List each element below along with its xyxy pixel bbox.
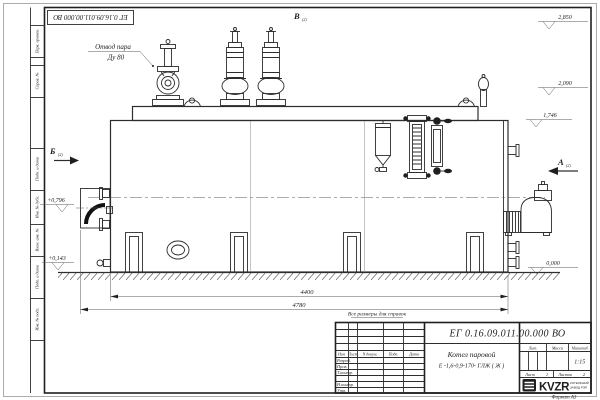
side-label: Подп. и дата xyxy=(35,157,40,182)
view-markers: Б (2) В (2) А (2) xyxy=(49,11,578,175)
side-column-labels: Перв. примен. Справ. № Подп. и дата Инв.… xyxy=(35,29,40,332)
col-list: Лист xyxy=(348,353,358,357)
elevation-0143: +0,143 xyxy=(48,255,66,262)
steam-outlet-callout: Отвод пара Ду 80 xyxy=(88,43,154,67)
safety-valve xyxy=(221,28,250,106)
side-label: Инв. № подл. xyxy=(35,307,40,331)
side-label: Инв. № дубл. xyxy=(35,196,40,220)
view-marker-b-ref: (2) xyxy=(58,152,63,157)
boiler-drawing: Перв. примен. Справ. № Подп. и дата Инв.… xyxy=(0,0,600,400)
format-label: Формат А3 xyxy=(552,396,577,400)
title-product-model: Е -1,6-0,9-170- ГЛЖ ( Ж ) xyxy=(438,363,505,370)
manhole-oval xyxy=(167,241,189,259)
side-label: Взам. инв. № xyxy=(35,228,40,251)
drawing-sheet: Перв. примен. Справ. № Подп. и дата Инв.… xyxy=(0,0,600,400)
view-marker-v-ref: (2) xyxy=(302,17,307,22)
rear-blower-unit xyxy=(504,182,552,236)
manufacturer-logo: KVZR КОТЕЛЬНЫЙ ЗАВОД РЭП xyxy=(523,379,589,394)
top-stamp: ЕГ 0.16.09.011.00.000 ВО xyxy=(48,11,134,25)
row-nkontr: Н.контр. xyxy=(336,382,354,387)
support-legs xyxy=(126,233,484,273)
burner-unit xyxy=(76,189,114,229)
sample-cooler xyxy=(375,121,391,172)
side-label: Подп. и дата xyxy=(35,265,40,290)
dim-4780: 4780 xyxy=(293,302,307,309)
scale-value: 1:15 xyxy=(574,360,585,366)
listov-label: Листов xyxy=(557,372,572,377)
dim-4400: 4400 xyxy=(301,289,315,296)
logo-text: KVZR xyxy=(539,382,570,394)
title-doc-number: ЕГ 0.16.09.011.00.000 ВО xyxy=(448,329,565,340)
view-marker-a-ref: (2) xyxy=(566,163,571,168)
list-label: Лист xyxy=(524,372,535,377)
col-ndokum: N докум. xyxy=(362,352,378,357)
boiler-view xyxy=(58,28,560,281)
elevation-0000: 0,000 xyxy=(546,261,560,267)
top-stamp-number: ЕГ 0.16.09.011.00.000 ВО xyxy=(53,13,129,21)
view-marker-b: Б xyxy=(49,146,56,156)
vent-pipe xyxy=(479,75,489,107)
side-label: Перв. примен. xyxy=(35,29,40,55)
logo-sub1: КОТЕЛЬНЫЙ xyxy=(570,381,589,385)
row-utv: Утв. xyxy=(337,388,346,393)
masshtab-header: Масштаб xyxy=(571,347,589,351)
callout-line2: Ду 80 xyxy=(107,54,125,62)
listov-value: 2 xyxy=(583,372,586,377)
list-value: 1 xyxy=(546,372,548,377)
title-block: ЕГ 0.16.09.011.00.000 ВО Котел паровой Е… xyxy=(336,323,592,400)
elevation-0796: +0,796 xyxy=(47,198,65,204)
col-izm: Изм xyxy=(337,352,345,357)
view-marker-a: А xyxy=(557,157,564,167)
steam-outlet-valve xyxy=(153,40,184,106)
boiler-shell xyxy=(111,121,509,273)
side-label: Справ. № xyxy=(35,72,40,89)
safety-valve xyxy=(257,28,286,106)
title-product-name: Котел паровой xyxy=(447,350,496,359)
elevation-2090: 2,090 xyxy=(558,81,572,87)
rear-nozzles xyxy=(508,145,519,269)
row-razrab: Разраб. xyxy=(336,358,351,363)
view-marker-v: В xyxy=(293,11,300,21)
note-text: Все размеры для справок xyxy=(348,311,407,318)
col-podp: Подп. xyxy=(388,352,399,357)
ground-hatch xyxy=(58,273,560,280)
lit-header: Лит. xyxy=(527,346,537,351)
logo-sub2: ЗАВОД РЭП xyxy=(570,386,587,390)
col-data: Дата xyxy=(408,352,418,357)
elevation-1746: 1,746 xyxy=(543,112,557,119)
reference-note: Все размеры для справок xyxy=(348,311,407,318)
elevation-2850: 2,850 xyxy=(558,15,572,21)
callout-line1: Отвод пара xyxy=(95,43,131,51)
massa-header: Масса xyxy=(551,346,563,351)
row-tkontr: Т.контр. xyxy=(337,370,353,375)
water-level-gauges xyxy=(403,116,452,179)
row-prov: Пров. xyxy=(336,364,348,369)
